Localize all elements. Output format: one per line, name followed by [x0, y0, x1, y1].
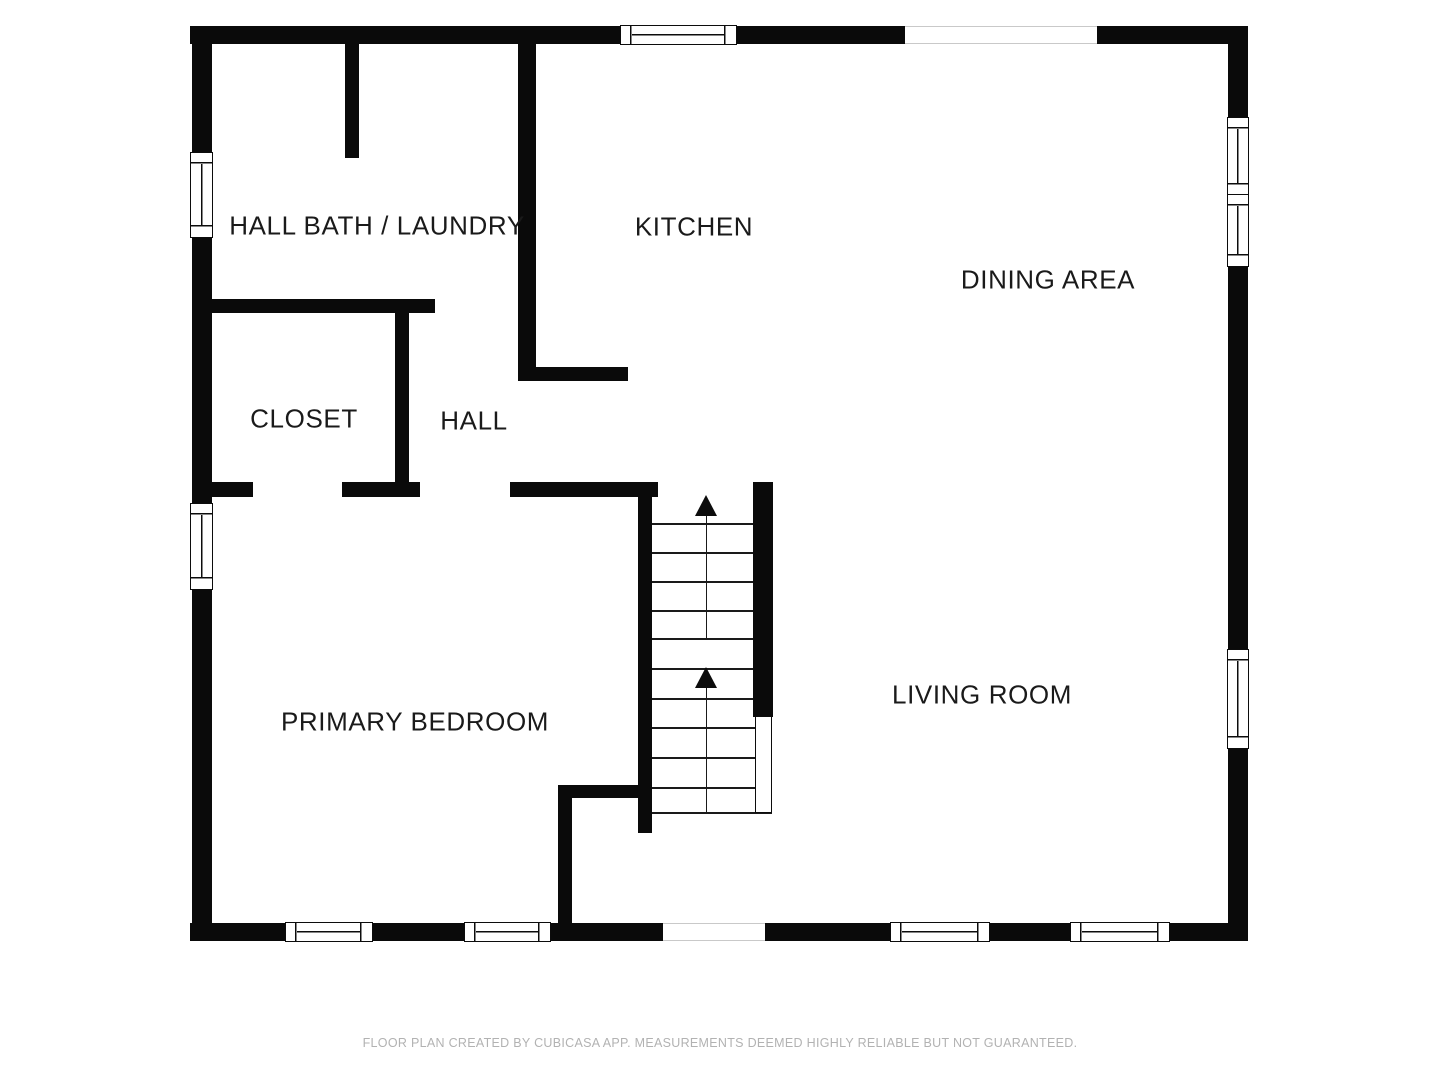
window — [1227, 194, 1249, 267]
stair-step — [652, 523, 753, 525]
entry-door-opening — [663, 923, 765, 941]
wall-segment — [753, 482, 773, 717]
wall-segment — [192, 238, 212, 503]
stairs-up-arrow-icon — [706, 686, 708, 812]
wall-segment — [192, 26, 212, 152]
wall-segment — [765, 923, 890, 941]
room-label-primary-bedroom: PRIMARY BEDROOM — [281, 707, 549, 738]
window — [190, 503, 213, 590]
room-label-kitchen: KITCHEN — [635, 212, 753, 243]
wall-opening — [905, 26, 1097, 44]
wall-segment — [558, 785, 572, 923]
wall-segment — [518, 44, 536, 368]
wall-segment — [737, 26, 905, 44]
wall-segment — [558, 785, 652, 798]
footer-disclaimer: FLOOR PLAN CREATED BY CUBICASA APP. MEAS… — [363, 1036, 1078, 1050]
window — [285, 922, 373, 942]
window — [1070, 922, 1170, 942]
stair-railing — [755, 716, 772, 813]
stair-bottom-edge — [652, 812, 772, 814]
wall-segment — [638, 482, 652, 833]
window — [620, 25, 737, 45]
floor-plan: HALL BATH / LAUNDRY KITCHEN DINING AREA … — [0, 0, 1440, 1080]
window — [464, 922, 551, 942]
window — [1227, 649, 1249, 749]
wall-segment — [395, 299, 409, 497]
window — [190, 152, 213, 238]
wall-segment — [1097, 26, 1248, 44]
wall-segment — [192, 590, 212, 941]
stair-step — [652, 727, 756, 729]
wall-segment — [1228, 267, 1248, 649]
stair-step — [652, 757, 756, 759]
room-label-dining-area: DINING AREA — [961, 265, 1135, 296]
stairs-up-arrow-icon — [706, 514, 708, 638]
wall-segment — [510, 482, 658, 497]
wall-segment — [192, 482, 253, 497]
wall-segment — [518, 367, 628, 381]
room-label-hall-bath-laundry: HALL BATH / LAUNDRY — [229, 211, 525, 242]
wall-segment — [551, 923, 663, 941]
stair-step — [652, 610, 753, 612]
room-label-living-room: LIVING ROOM — [892, 680, 1072, 711]
stair-step — [652, 552, 753, 554]
wall-segment — [345, 44, 359, 158]
wall-segment — [1228, 749, 1248, 941]
stair-landing-edge — [652, 638, 753, 640]
wall-segment — [990, 923, 1070, 941]
room-label-closet: CLOSET — [250, 404, 358, 435]
wall-segment — [373, 923, 464, 941]
stair-step — [652, 787, 756, 789]
window — [890, 922, 990, 942]
stairs-up-arrow-icon — [695, 495, 717, 516]
wall-segment — [190, 26, 620, 44]
floor-plan-page: HALL BATH / LAUNDRY KITCHEN DINING AREA … — [0, 0, 1440, 1080]
wall-segment — [342, 482, 420, 497]
stairs-up-arrow-icon — [695, 667, 717, 688]
room-label-hall: HALL — [440, 406, 507, 437]
stair-step — [652, 581, 753, 583]
wall-segment — [1228, 26, 1248, 117]
window — [1227, 117, 1249, 196]
stair-step — [652, 698, 753, 700]
